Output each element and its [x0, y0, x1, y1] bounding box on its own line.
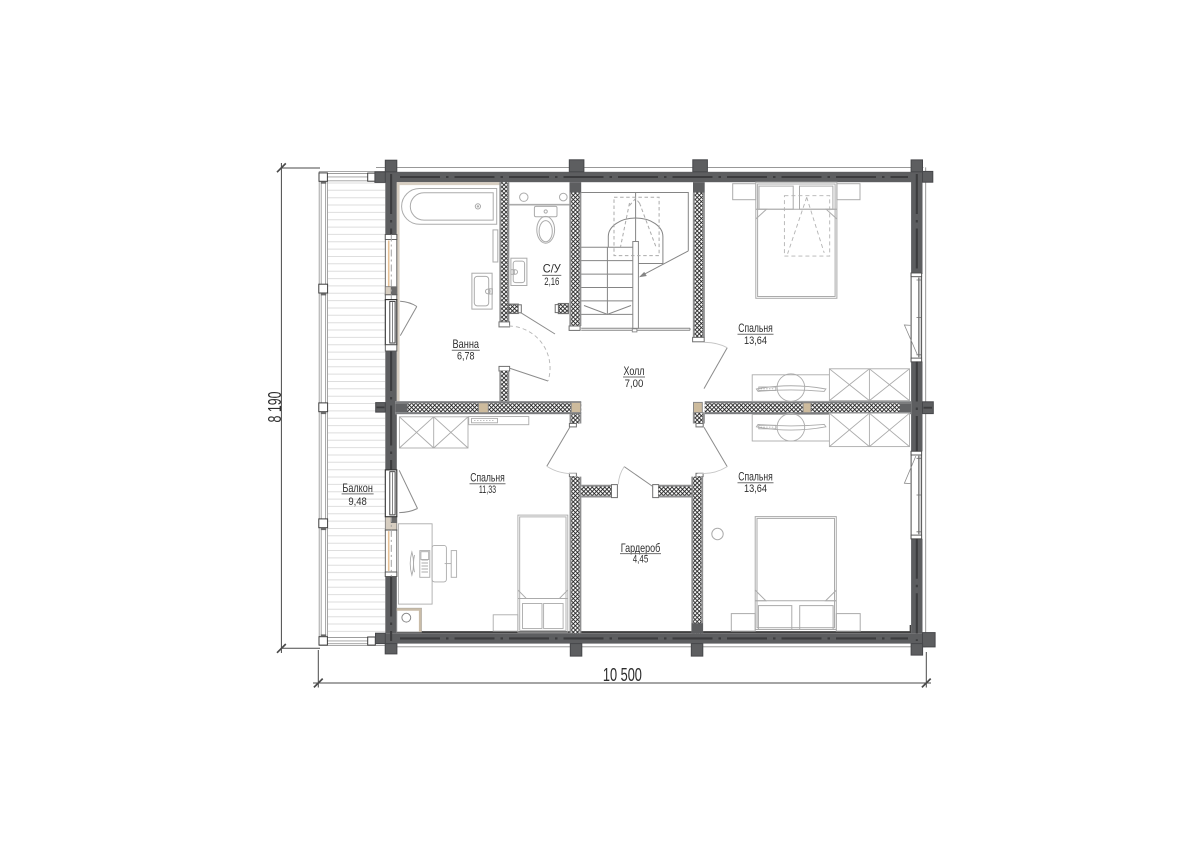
svg-text:Спальня: Спальня — [738, 321, 773, 335]
svg-text:10 500: 10 500 — [603, 665, 642, 685]
svg-text:6,78: 6,78 — [457, 350, 475, 362]
svg-text:7,00: 7,00 — [625, 378, 644, 390]
svg-text:4,45: 4,45 — [633, 553, 649, 565]
svg-text:Спальня: Спальня — [738, 470, 773, 484]
svg-text:Спальня: Спальня — [470, 471, 505, 485]
svg-text:13,64: 13,64 — [744, 483, 767, 495]
svg-text:9,48: 9,48 — [348, 496, 367, 508]
svg-text:2,16: 2,16 — [544, 276, 559, 288]
svg-text:Холл: Холл — [624, 364, 645, 378]
svg-text:Ванна: Ванна — [453, 337, 480, 351]
svg-text:С/У: С/У — [543, 262, 561, 276]
svg-text:11,33: 11,33 — [479, 484, 496, 496]
svg-text:8 190: 8 190 — [265, 392, 285, 423]
svg-text:Балкон: Балкон — [342, 481, 373, 495]
svg-text:13,64: 13,64 — [744, 335, 767, 347]
